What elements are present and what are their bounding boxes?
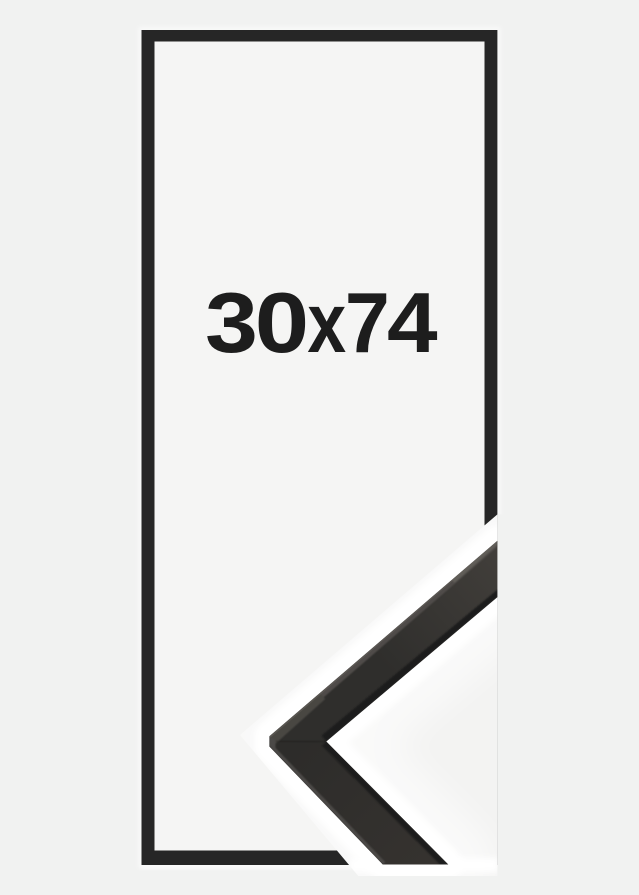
svg-text:0: 0 (255, 276, 309, 371)
svg-text:4: 4 (387, 275, 438, 371)
svg-text:3: 3 (205, 276, 258, 371)
svg-text:x: x (307, 277, 346, 371)
svg-text:7: 7 (345, 275, 390, 370)
